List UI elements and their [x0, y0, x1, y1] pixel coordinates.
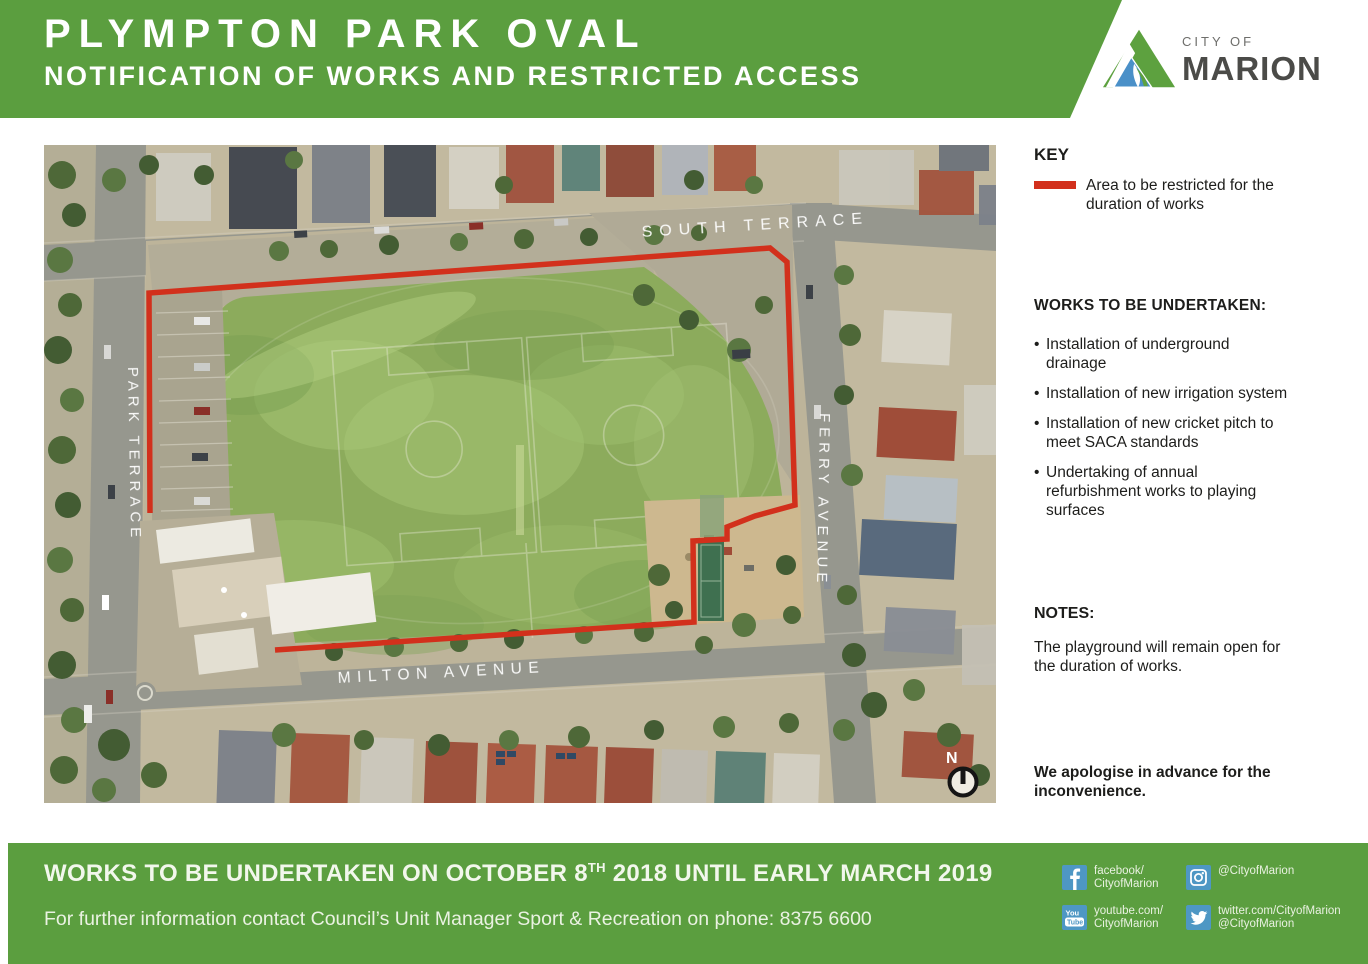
- page-subtitle: NOTIFICATION OF WORKS AND RESTRICTED ACC…: [44, 61, 862, 92]
- key-legend-row: Area to be restricted for the duration o…: [1034, 176, 1274, 214]
- city-of-marion-logo: CITY OF MARION: [1102, 26, 1322, 90]
- facebook-icon: [1062, 865, 1087, 890]
- street-label-ferry-avenue: FERRY AVENUE: [813, 413, 833, 587]
- works-item-text: Undertaking of annual refurbishment work…: [1046, 463, 1256, 520]
- bullet-glyph: •: [1034, 414, 1046, 452]
- footer-headline-sup: TH: [588, 860, 606, 875]
- notes-body: The playground will remain open for the …: [1034, 638, 1280, 676]
- works-item: • Installation of new cricket pitch to m…: [1034, 414, 1334, 452]
- bullet-glyph: •: [1034, 335, 1046, 373]
- marion-triangle-icon: [1102, 26, 1176, 90]
- page-title: PLYMPTON PARK OVAL: [44, 12, 647, 57]
- bullet-glyph: •: [1034, 384, 1046, 403]
- social-facebook[interactable]: facebook/ CityofMarion: [1062, 865, 1159, 891]
- apology-text: We apologise in advance for the inconven…: [1034, 763, 1271, 801]
- social-instagram[interactable]: @CityofMarion: [1186, 865, 1294, 890]
- key-heading: KEY: [1034, 145, 1069, 165]
- bullet-glyph: •: [1034, 463, 1046, 520]
- social-facebook-label: facebook/ CityofMarion: [1094, 865, 1159, 891]
- works-item: • Undertaking of annual refurbishment wo…: [1034, 463, 1334, 520]
- logo-marion: MARION: [1182, 50, 1322, 88]
- works-heading: WORKS TO BE UNDERTAKEN:: [1034, 297, 1266, 315]
- social-twitter-label: twitter.com/CityofMarion @CityofMarion: [1218, 905, 1341, 931]
- social-instagram-label: @CityofMarion: [1218, 865, 1294, 878]
- logo-city-of: CITY OF: [1182, 34, 1322, 49]
- svg-text:You: You: [1066, 909, 1080, 918]
- works-item: • Installation of underground drainage: [1034, 335, 1334, 373]
- footer-banner: WORKS TO BE UNDERTAKEN ON OCTOBER 8TH 20…: [8, 843, 1368, 964]
- instagram-icon: [1186, 865, 1211, 890]
- footer-headline-suffix: 2018 UNTIL EARLY MARCH 2019: [606, 860, 993, 887]
- social-youtube-label: youtube.com/ CityofMarion: [1094, 905, 1163, 931]
- twitter-icon: [1186, 905, 1211, 930]
- youtube-icon: You Tube: [1062, 905, 1087, 930]
- works-item-text: Installation of new cricket pitch to mee…: [1046, 414, 1273, 452]
- footer-contact-info: For further information contact Council’…: [44, 908, 872, 931]
- social-twitter[interactable]: twitter.com/CityofMarion @CityofMarion: [1186, 905, 1341, 931]
- social-youtube[interactable]: You Tube youtube.com/ CityofMarion: [1062, 905, 1163, 931]
- notes-heading: NOTES:: [1034, 605, 1094, 623]
- flyer-page: PLYMPTON PARK OVAL NOTIFICATION OF WORKS…: [0, 0, 1368, 964]
- footer-headline-prefix: WORKS TO BE UNDERTAKEN ON OCTOBER 8: [44, 860, 588, 887]
- svg-text:N: N: [946, 750, 958, 767]
- works-item: • Installation of new irrigation system: [1034, 384, 1334, 403]
- works-item-text: Installation of underground drainage: [1046, 335, 1230, 373]
- footer-headline: WORKS TO BE UNDERTAKEN ON OCTOBER 8TH 20…: [44, 860, 993, 888]
- svg-text:Tube: Tube: [1067, 920, 1083, 927]
- aerial-map: SOUTH TERRACE PARK TERRACE FERRY AVENUE …: [44, 145, 996, 803]
- works-list: • Installation of underground drainage •…: [1034, 335, 1334, 531]
- street-label-park-terrace: PARK TERRACE: [124, 367, 144, 543]
- works-item-text: Installation of new irrigation system: [1046, 384, 1287, 403]
- key-legend-label: Area to be restricted for the duration o…: [1086, 176, 1274, 214]
- restricted-line-swatch: [1034, 181, 1076, 189]
